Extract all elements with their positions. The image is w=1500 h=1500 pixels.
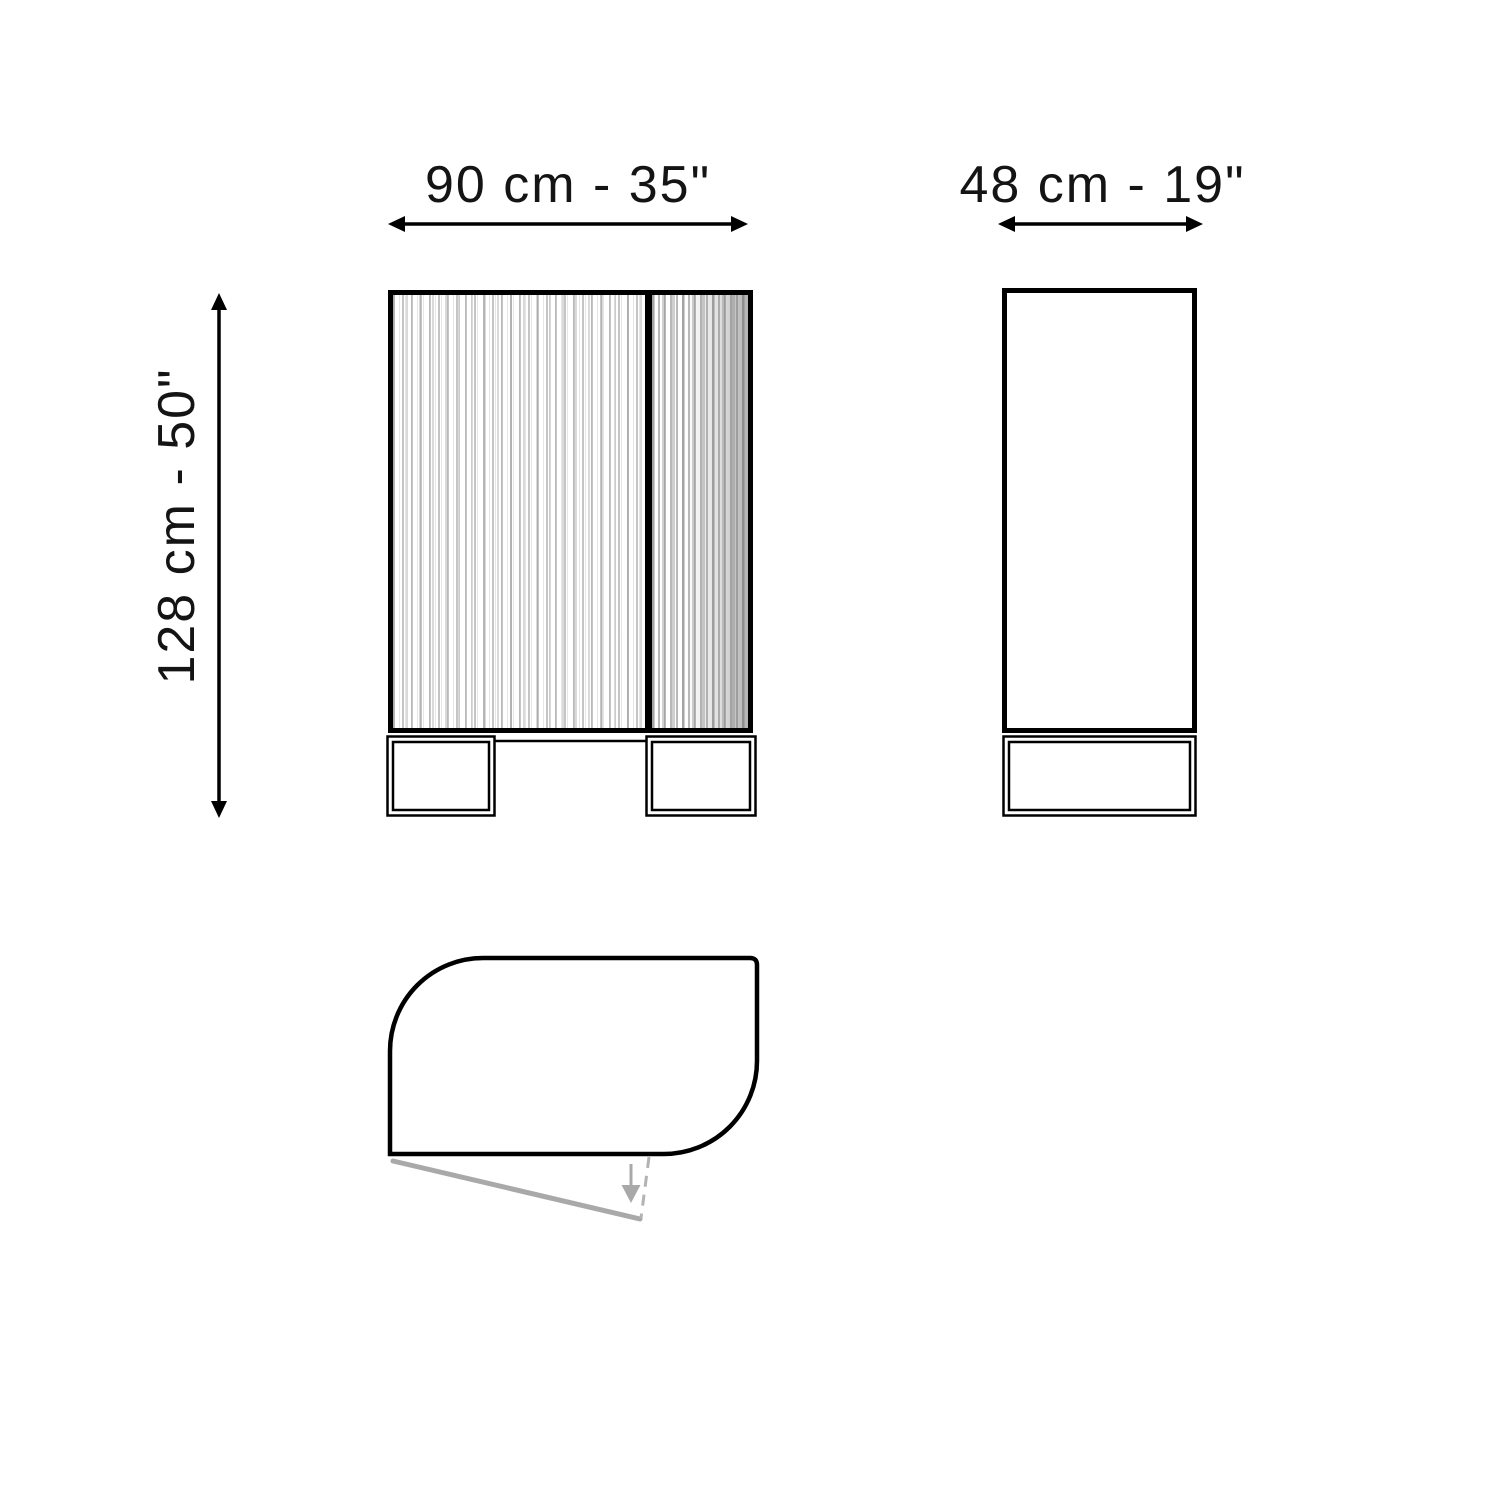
width-dimension-label: 90 cm - 35" xyxy=(388,155,748,215)
depth-dimension-arrow xyxy=(998,216,1203,232)
door-swing-arc-dashed xyxy=(641,1157,649,1218)
side-view xyxy=(1004,291,1196,816)
depth-dimension-label: 48 cm - 19" xyxy=(955,155,1250,215)
side-leg xyxy=(1004,737,1196,816)
height-dimension-arrow xyxy=(211,293,227,818)
drawing-linework xyxy=(0,0,1500,1500)
top-view xyxy=(390,958,757,1219)
front-view xyxy=(388,291,756,816)
front-right-leg xyxy=(647,737,756,816)
door-swing-indicator xyxy=(393,1157,649,1219)
width-dimension-arrow xyxy=(388,216,748,232)
furniture-dimension-drawing: 90 cm - 35" 48 cm - 19" 128 cm - 50" xyxy=(0,0,1500,1500)
door-open-direction-arrow xyxy=(622,1164,641,1203)
front-left-leg xyxy=(388,737,495,816)
top-view-outline xyxy=(390,958,757,1154)
height-dimension-label: 128 cm - 50" xyxy=(147,226,207,826)
door-open-position-line xyxy=(393,1161,640,1219)
